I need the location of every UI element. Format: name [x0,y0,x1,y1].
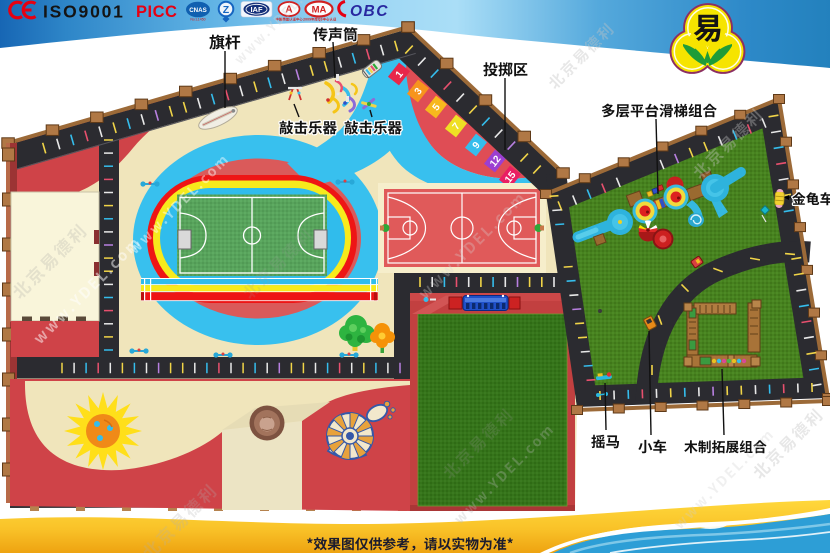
svg-text:OBC: OBC [350,3,389,20]
svg-text:IAF: IAF [250,5,263,14]
svg-text:No:L1450: No:L1450 [190,18,205,22]
svg-text:Z: Z [223,4,230,16]
svg-text:MA: MA [312,4,327,15]
svg-text:ISO9001: ISO9001 [43,2,125,22]
svg-text:CNAS: CNAS [189,7,207,14]
svg-text:PICC: PICC [136,3,177,21]
